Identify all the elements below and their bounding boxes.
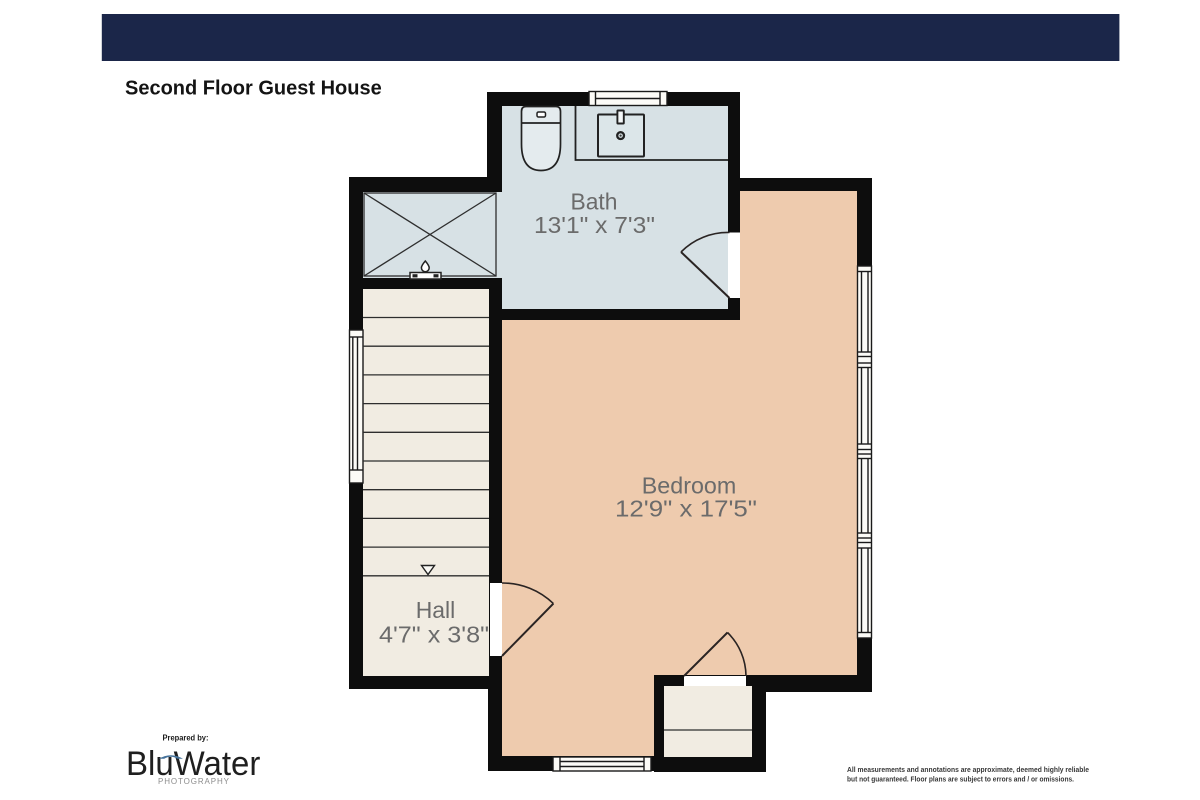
svg-text:13'1" x 7'3": 13'1" x 7'3"	[534, 212, 655, 238]
svg-text:PHOTOGRAPHY: PHOTOGRAPHY	[158, 777, 230, 786]
svg-text:4'7" x 3'8": 4'7" x 3'8"	[379, 622, 489, 648]
svg-text:but not guaranteed. Floor plan: but not guaranteed. Floor plans are subj…	[847, 775, 1074, 784]
svg-text:Bath: Bath	[571, 189, 618, 215]
svg-text:12'9" x 17'5": 12'9" x 17'5"	[615, 496, 757, 522]
svg-text:Prepared by:: Prepared by:	[163, 733, 209, 742]
svg-text:All measurements and annotatio: All measurements and annotations are app…	[847, 765, 1089, 774]
svg-text:Hall: Hall	[416, 597, 456, 623]
svg-text:Second Floor Guest House: Second Floor Guest House	[125, 78, 382, 100]
